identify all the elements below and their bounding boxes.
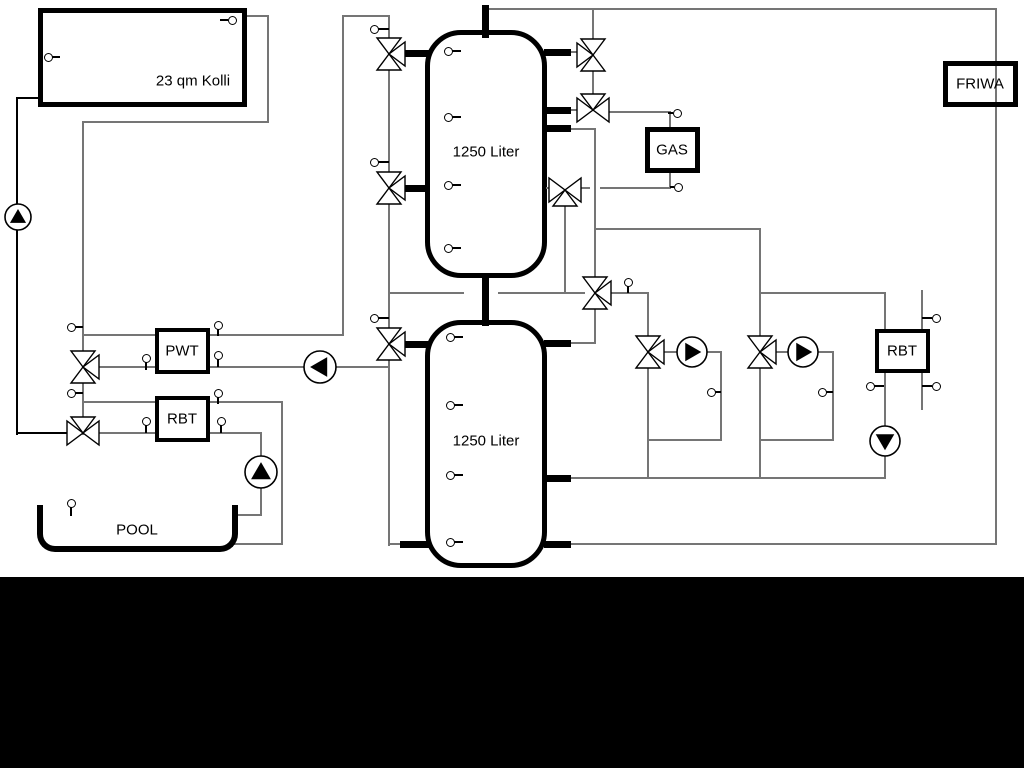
buffer-tank-upper-label: 1250 Liter: [453, 144, 520, 161]
rbt-left-label: RBT: [167, 411, 197, 428]
pipe-line: [647, 367, 649, 479]
sensor-tick: [220, 425, 221, 433]
temperature-sensor-icon: [444, 181, 453, 190]
sensor-tick: [454, 474, 463, 475]
pump-icon: [242, 453, 280, 491]
temperature-sensor-icon: [67, 389, 76, 398]
pipe-line: [594, 228, 761, 230]
temperature-sensor-icon: [214, 351, 223, 360]
pipe-line: [759, 292, 886, 294]
sensor-tick: [217, 329, 218, 336]
pipe-line: [388, 292, 464, 294]
pool-label: POOL: [116, 522, 158, 539]
pump-icon: [301, 348, 339, 386]
sensor-tick: [452, 116, 461, 117]
pipe-line: [267, 15, 269, 123]
three-way-valve-icon: [543, 168, 587, 212]
pipe-line: [342, 15, 390, 17]
temperature-sensor-icon: [446, 471, 455, 480]
pipe-line: [498, 292, 585, 294]
pipe-line: [16, 97, 18, 435]
pipe-line: [759, 439, 834, 441]
temperature-sensor-icon: [67, 323, 76, 332]
sensor-tick: [145, 425, 146, 433]
sensor-tick: [454, 404, 463, 405]
pipe-line: [281, 401, 283, 545]
pipe-line: [246, 15, 269, 17]
pipe-line: [647, 439, 722, 441]
sensor-tick: [52, 56, 60, 57]
temperature-sensor-icon: [44, 53, 53, 62]
pipe-line: [600, 187, 671, 189]
temperature-sensor-icon: [446, 538, 455, 547]
pipe-stub: [544, 541, 571, 548]
pipe-line: [564, 203, 566, 294]
temperature-sensor-icon: [142, 354, 151, 363]
sensor-tick: [454, 336, 463, 337]
sensor-tick: [217, 359, 218, 367]
temperature-sensor-icon: [370, 314, 379, 323]
sensor-tick: [378, 317, 389, 318]
temperature-sensor-icon: [228, 16, 237, 25]
pipe-line: [209, 366, 390, 368]
temperature-sensor-icon: [707, 388, 716, 397]
temperature-sensor-icon: [370, 158, 379, 167]
sensor-tick: [826, 391, 833, 392]
pipe-line: [209, 401, 283, 403]
sensor-tick: [874, 385, 884, 386]
temperature-sensor-icon: [866, 382, 875, 391]
pipe-line: [594, 128, 596, 279]
pipe-line: [233, 543, 283, 545]
pipe-line: [209, 334, 344, 336]
pipe-stub: [544, 475, 571, 482]
temperature-sensor-icon: [674, 183, 683, 192]
temperature-sensor-icon: [444, 244, 453, 253]
sensor-tick: [70, 507, 71, 516]
temperature-sensor-icon: [444, 47, 453, 56]
pipe-stub: [482, 5, 489, 38]
temperature-sensor-icon: [624, 278, 633, 287]
pipe-line: [884, 292, 886, 330]
pipe-stub: [482, 273, 489, 326]
temperature-sensor-icon: [446, 333, 455, 342]
pump-icon: [785, 334, 821, 370]
pipe-stub: [544, 340, 571, 347]
pipe-line: [342, 15, 344, 336]
pipe-stub: [400, 541, 429, 548]
three-way-valve-icon: [626, 330, 670, 374]
pipe-line: [609, 111, 671, 113]
pipe-line: [16, 97, 39, 99]
pipe-line: [669, 111, 671, 128]
sensor-tick: [922, 385, 932, 386]
pipe-line: [82, 334, 156, 336]
gas-boiler-label: GAS: [656, 142, 688, 159]
pipe-line: [82, 121, 269, 123]
sensor-tick: [452, 50, 461, 51]
temperature-sensor-icon: [446, 401, 455, 410]
pipe-line: [484, 8, 997, 10]
temperature-sensor-icon: [214, 321, 223, 330]
temperature-sensor-icon: [142, 417, 151, 426]
temperature-sensor-icon: [67, 499, 76, 508]
temperature-sensor-icon: [217, 417, 226, 426]
temperature-sensor-icon: [932, 382, 941, 391]
three-way-valve-icon: [571, 33, 615, 77]
sensor-tick: [75, 392, 83, 393]
temperature-sensor-icon: [444, 113, 453, 122]
pipe-line: [832, 351, 834, 441]
three-way-valve-icon: [573, 271, 617, 315]
sensor-tick: [922, 317, 932, 318]
three-way-valve-icon: [738, 330, 782, 374]
pipe-stub: [544, 125, 571, 132]
pump-icon: [674, 334, 710, 370]
sensor-tick: [627, 286, 628, 293]
sensor-tick: [452, 247, 461, 248]
three-way-valve-icon: [571, 88, 615, 132]
pipe-line: [566, 477, 886, 479]
sensor-tick: [378, 28, 389, 29]
temperature-sensor-icon: [818, 388, 827, 397]
sensor-tick: [220, 19, 228, 20]
temperature-sensor-icon: [673, 109, 682, 118]
pipe-line: [759, 367, 761, 479]
pwt-heat-exchanger-label: PWT: [165, 343, 198, 360]
pump-icon: [867, 423, 903, 459]
temperature-sensor-icon: [214, 389, 223, 398]
pipe-line: [209, 432, 262, 434]
pipe-line: [566, 543, 997, 545]
bottom-black-band: [0, 577, 1024, 768]
pipe-line: [720, 351, 722, 441]
pump-icon: [2, 201, 34, 233]
temperature-sensor-icon: [370, 25, 379, 34]
pipe-line: [759, 228, 761, 338]
buffer-tank-lower-label: 1250 Liter: [453, 433, 520, 450]
solar-collector: [38, 8, 247, 107]
sensor-tick: [378, 161, 389, 162]
sensor-tick: [715, 391, 721, 392]
diagram-canvas: 1250 Liter1250 Liter23 qm KolliGASFRIWAP…: [0, 0, 1024, 768]
pipe-stub: [544, 107, 571, 114]
rbt-right-label: RBT: [887, 343, 917, 360]
sensor-tick: [452, 184, 461, 185]
pipe-line: [388, 15, 390, 546]
three-way-valve-icon: [367, 32, 411, 76]
sensor-tick: [217, 397, 218, 404]
three-way-valve-icon: [367, 166, 411, 210]
pipe-line: [98, 432, 156, 434]
temperature-sensor-icon: [932, 314, 941, 323]
sensor-tick: [454, 541, 463, 542]
three-way-valve-icon: [61, 411, 105, 455]
pipe-line: [82, 401, 156, 403]
friwa-station-label: FRIWA: [956, 76, 1004, 93]
pipe-stub: [544, 49, 571, 56]
sensor-tick: [145, 362, 146, 370]
solar-collector-label: 23 qm Kolli: [156, 73, 230, 90]
three-way-valve-icon: [61, 345, 105, 389]
sensor-tick: [75, 326, 83, 327]
three-way-valve-icon: [367, 322, 411, 366]
